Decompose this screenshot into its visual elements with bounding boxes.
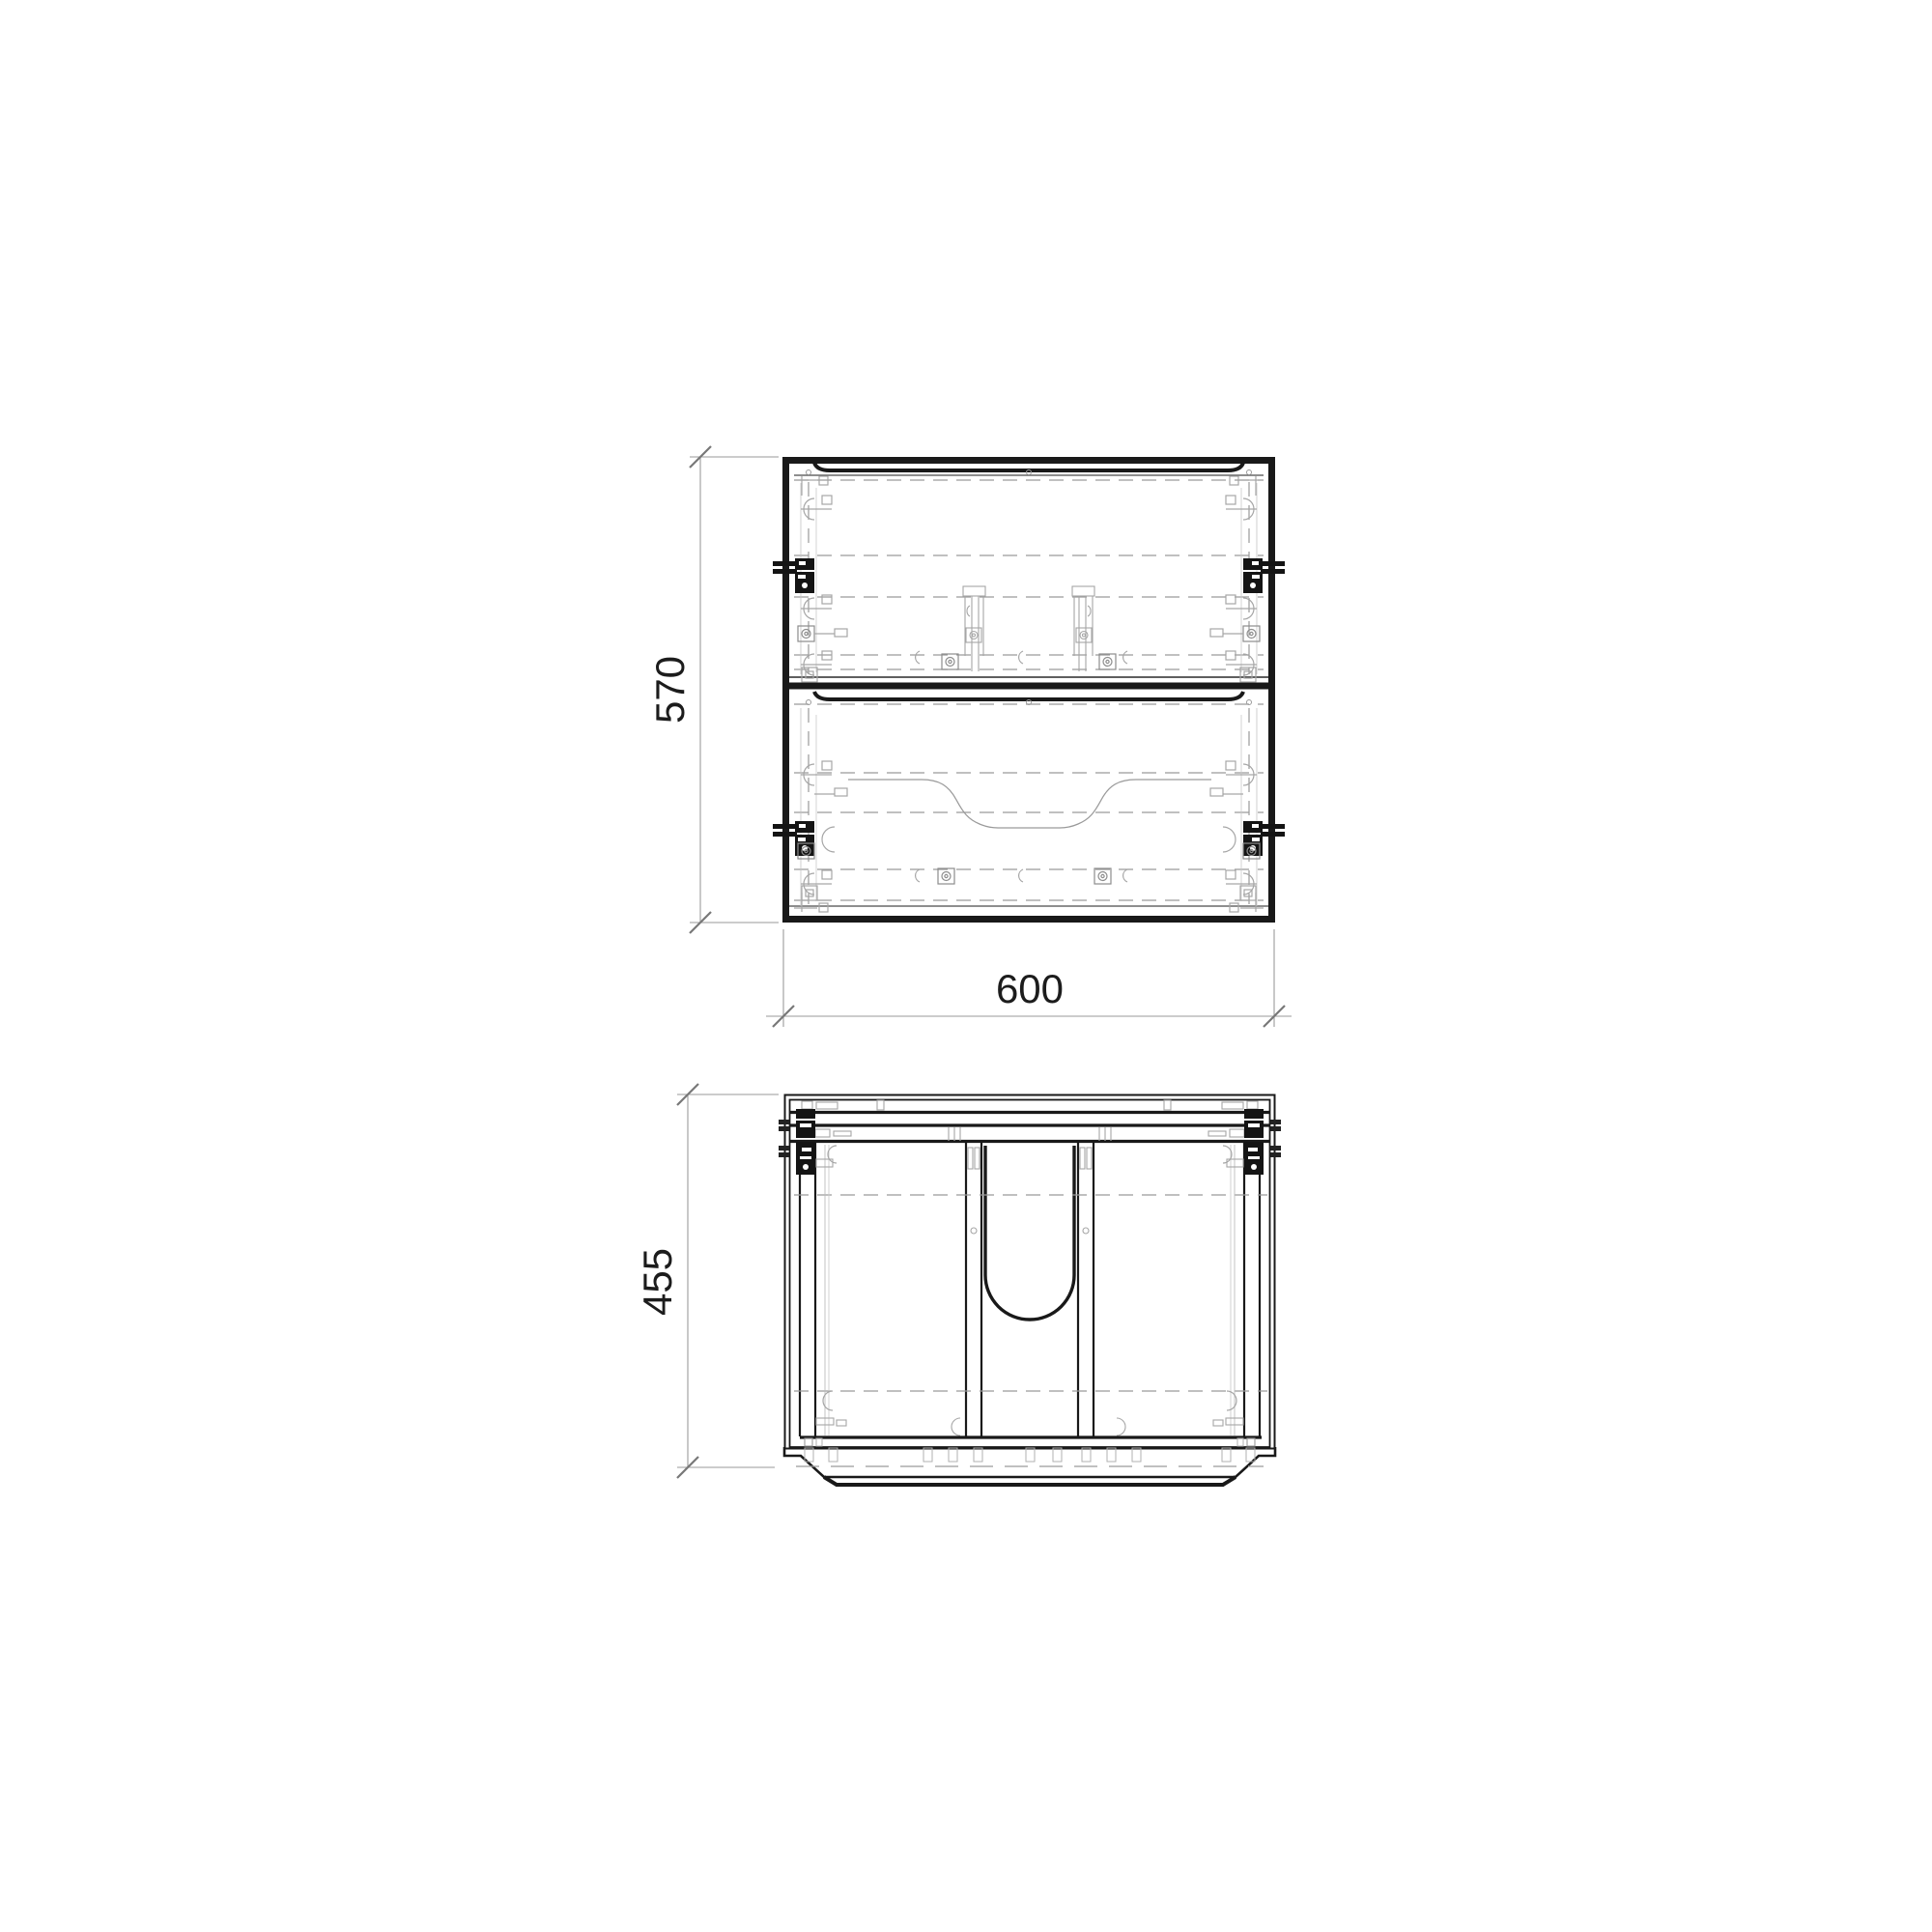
dowel-marks	[923, 1448, 1141, 1462]
front-view	[773, 461, 1285, 920]
dim-text-455: 455	[635, 1248, 680, 1316]
dim-text-600: 600	[996, 966, 1064, 1011]
drawing-sheet: 570 600 455	[0, 0, 1932, 1932]
plan-view	[779, 1095, 1281, 1486]
dimension-plan-depth: 455	[635, 1084, 779, 1478]
front-panel	[784, 1447, 1275, 1485]
cabinet-outline	[786, 461, 1272, 920]
technical-drawing-canvas: 570 600 455	[0, 0, 1932, 1932]
dimension-front-width: 600	[766, 929, 1292, 1027]
plan-outline-outer	[785, 1095, 1275, 1449]
dimension-front-height: 570	[647, 446, 779, 933]
dim-text-570: 570	[647, 656, 693, 724]
